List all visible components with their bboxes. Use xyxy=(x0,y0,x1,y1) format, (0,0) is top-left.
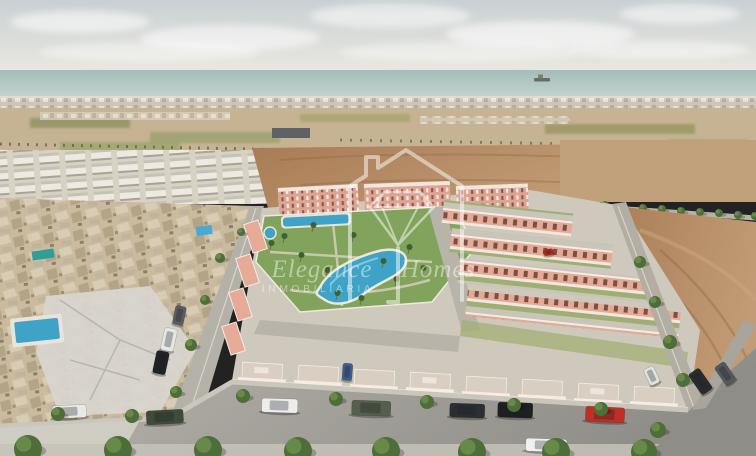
oldtown-pool xyxy=(10,313,65,347)
car xyxy=(341,363,354,383)
watermark-brand-word-2: Homes xyxy=(400,256,475,283)
coastal-town-strip xyxy=(0,98,756,109)
cloud xyxy=(340,42,580,62)
car xyxy=(143,409,187,428)
car xyxy=(447,403,488,421)
pergola xyxy=(590,388,604,395)
sea xyxy=(0,70,756,100)
cloud xyxy=(10,11,150,33)
white-rowhouses xyxy=(0,150,272,204)
cloud xyxy=(620,4,740,24)
scene-canvas: Elegance Homes INMOBILIARIA xyxy=(0,0,756,456)
car xyxy=(259,398,301,416)
right-far-ground xyxy=(560,140,756,202)
cloud xyxy=(570,41,750,59)
pergola xyxy=(422,377,436,384)
tree xyxy=(715,209,726,217)
car xyxy=(348,400,394,419)
warehouse xyxy=(272,128,310,138)
watermark-subtitle: INMOBILIARIA xyxy=(262,283,375,295)
aerial-development-photo: Elegance Homes INMOBILIARIA xyxy=(0,0,756,456)
cloud xyxy=(310,4,470,28)
watermark-brand-word-1: Elegance xyxy=(270,256,372,283)
cloud xyxy=(40,42,260,62)
pergola xyxy=(254,367,268,374)
